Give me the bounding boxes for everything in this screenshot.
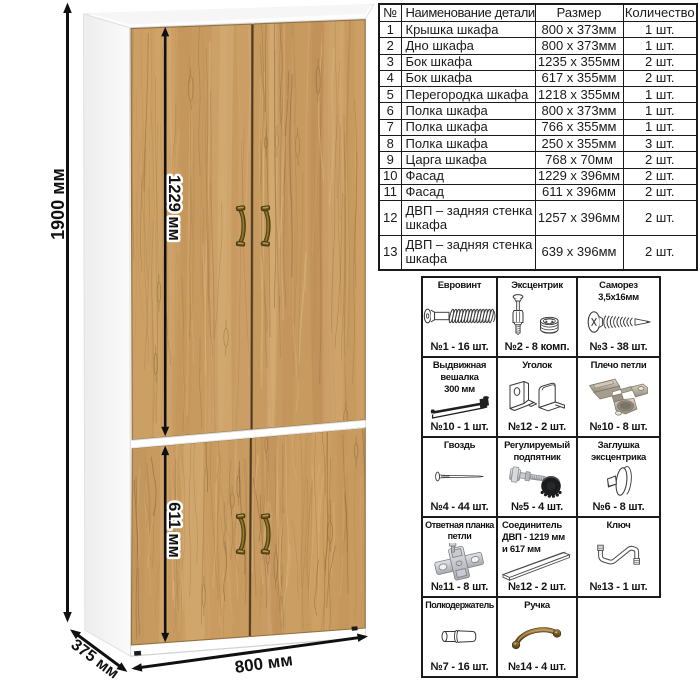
svg-text:611 мм: 611 мм	[165, 502, 183, 558]
svg-text:1229 мм: 1229 мм	[165, 175, 183, 241]
svg-text:1900 мм: 1900 мм	[48, 168, 68, 240]
